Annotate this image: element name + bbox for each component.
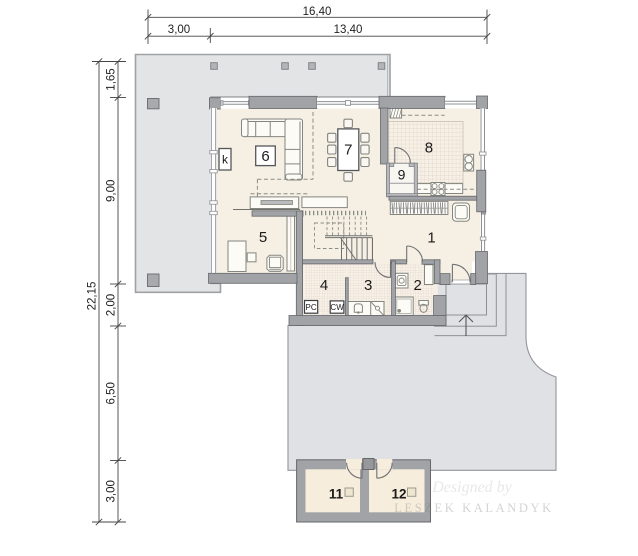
svg-text:LESZEK KALANDYK: LESZEK KALANDYK [394,501,553,515]
svg-text:4: 4 [320,277,328,294]
svg-text:6,50: 6,50 [106,382,118,404]
svg-text:3: 3 [364,277,372,294]
svg-text:11: 11 [329,487,344,502]
svg-text:9: 9 [398,167,406,183]
svg-text:PC: PC [306,303,317,312]
svg-text:8: 8 [425,140,433,157]
svg-text:2: 2 [414,277,422,294]
svg-text:12: 12 [391,487,406,502]
svg-text:CW: CW [330,303,344,312]
svg-text:Designed by: Designed by [431,479,512,496]
svg-text:3,00: 3,00 [106,480,118,502]
svg-text:16,40: 16,40 [303,6,332,18]
svg-text:k: k [222,153,229,167]
svg-text:1,65: 1,65 [106,68,118,90]
svg-text:2,00: 2,00 [106,294,118,316]
svg-text:6: 6 [261,148,269,165]
svg-text:13,40: 13,40 [334,24,363,36]
svg-text:9,00: 9,00 [106,180,118,202]
svg-text:3,00: 3,00 [168,24,190,36]
svg-text:1: 1 [427,230,435,247]
svg-text:22,15: 22,15 [87,282,99,311]
svg-text:5: 5 [259,229,267,246]
svg-text:7: 7 [344,142,352,159]
